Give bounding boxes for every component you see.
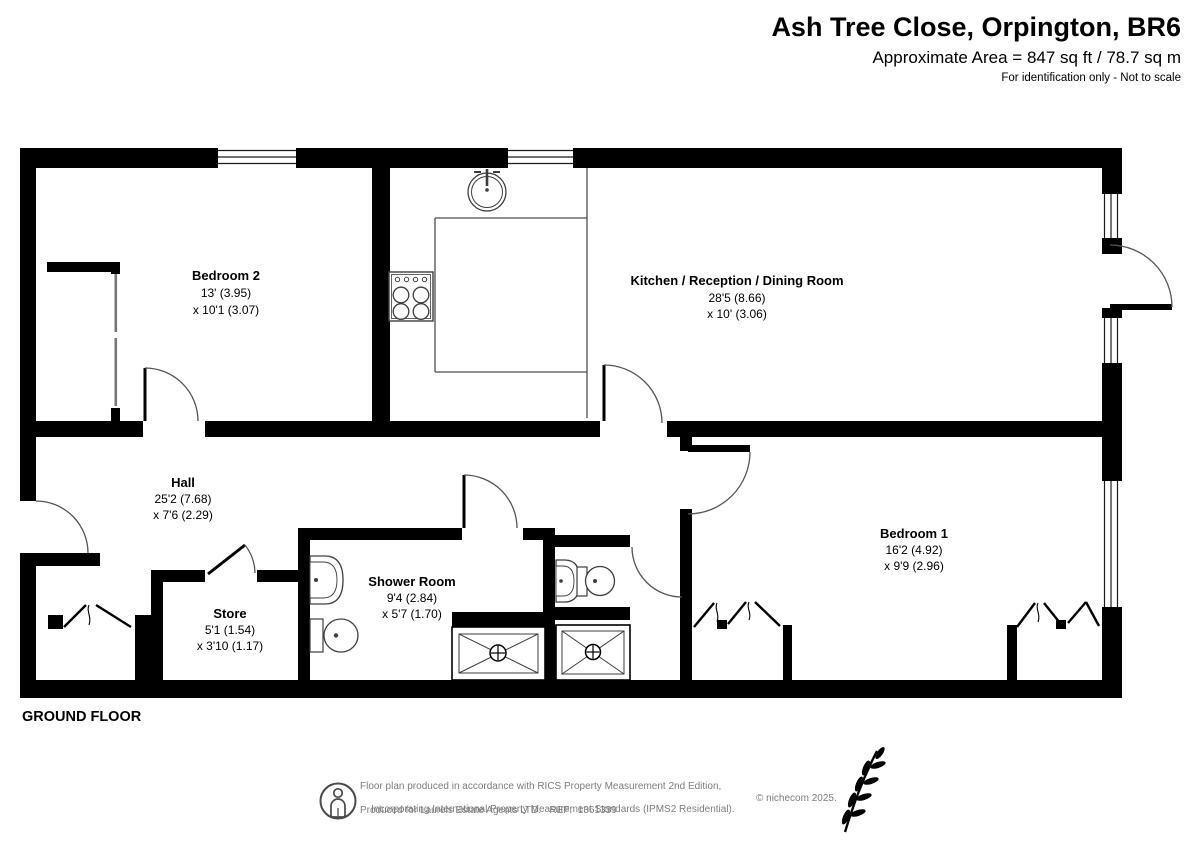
svg-text:Bedroom 1: Bedroom 1	[880, 526, 948, 541]
ensuite-shower-tray-icon	[556, 625, 630, 680]
svg-text:x 10' (3.06): x 10' (3.06)	[707, 307, 767, 321]
svg-text:28'5 (8.66): 28'5 (8.66)	[709, 291, 766, 305]
door-store	[208, 545, 255, 574]
label-hall: Hall 25'2 (7.68) x 7'6 (2.29)	[153, 475, 213, 522]
walls	[20, 148, 1122, 698]
door-bedroom2	[145, 368, 198, 421]
kitchen-sink-icon	[468, 169, 506, 211]
door-bedroom1	[688, 445, 750, 514]
label-shower-room: Shower Room 9'4 (2.84) x 5'7 (1.70)	[368, 574, 455, 621]
door-kitchen	[604, 365, 662, 423]
window-reception-upper	[1105, 194, 1118, 238]
svg-text:x 9'9 (2.96): x 9'9 (2.96)	[884, 559, 944, 573]
kitchen-counter	[435, 168, 587, 418]
svg-text:5'1 (1.54): 5'1 (1.54)	[205, 623, 255, 637]
closet-sliding-doors	[115, 274, 118, 406]
label-store: Store 5'1 (1.54) x 3'10 (1.17)	[197, 606, 263, 653]
door-front-right	[1110, 245, 1172, 310]
label-kitchen: Kitchen / Reception / Dining Room 28'5 (…	[630, 273, 843, 321]
svg-text:Store: Store	[213, 606, 246, 621]
person-in-circle-icon	[321, 784, 356, 819]
window-bedroom2	[218, 151, 296, 164]
svg-text:25'2 (7.68): 25'2 (7.68)	[155, 492, 212, 506]
label-bedroom1: Bedroom 1 16'2 (4.92) x 9'9 (2.96)	[880, 526, 948, 573]
door-shower-room	[464, 475, 517, 528]
svg-text:16'2 (4.92): 16'2 (4.92)	[886, 543, 943, 557]
bedroom1-wardrobe-left-zigzag	[694, 602, 780, 627]
shower-room-toilet-icon	[310, 619, 358, 652]
door-ensuite	[632, 547, 682, 597]
stove-icon	[389, 272, 433, 321]
svg-text:9'4 (2.84): 9'4 (2.84)	[387, 591, 437, 605]
door-rear-left	[36, 501, 88, 553]
shower-room-basin-icon	[310, 556, 343, 604]
svg-text:Hall: Hall	[171, 475, 195, 490]
footer-line3: Produced for Laurels Estate Agents LTD. …	[360, 805, 617, 816]
svg-text:Bedroom 2: Bedroom 2	[192, 268, 260, 283]
svg-text:x 7'6 (2.29): x 7'6 (2.29)	[153, 508, 213, 522]
footer-line1: Floor plan produced in accordance with R…	[360, 781, 721, 792]
label-bedroom2: Bedroom 2 13' (3.95) x 10'1 (3.07)	[192, 268, 260, 317]
svg-text:Kitchen / Reception / Dining R: Kitchen / Reception / Dining Room	[630, 273, 843, 288]
shower-tray-icon	[452, 627, 545, 680]
svg-text:x 5'7 (1.70): x 5'7 (1.70)	[382, 607, 442, 621]
footer-copyright: © nichecom 2025.	[756, 793, 837, 804]
ensuite-toilet-icon	[577, 567, 615, 597]
window-kitchen	[508, 151, 573, 164]
window-bedroom1	[1105, 481, 1118, 607]
floorplan-page: Ash Tree Close, Orpington, BR6 Approxima…	[0, 0, 1200, 849]
svg-text:Shower Room: Shower Room	[368, 574, 455, 589]
floor-label: GROUND FLOOR	[22, 709, 141, 725]
window-reception-lower	[1105, 318, 1118, 363]
leaf-branch-icon	[840, 746, 886, 832]
hall-cupboard-zigzag	[64, 605, 131, 627]
svg-text:x 3'10 (1.17): x 3'10 (1.17)	[197, 639, 263, 653]
svg-text:x 10'1 (3.07): x 10'1 (3.07)	[193, 303, 259, 317]
floorplan-drawing: Bedroom 2 13' (3.95) x 10'1 (3.07) Kitch…	[0, 0, 1200, 849]
svg-text:13' (3.95): 13' (3.95)	[201, 286, 251, 300]
